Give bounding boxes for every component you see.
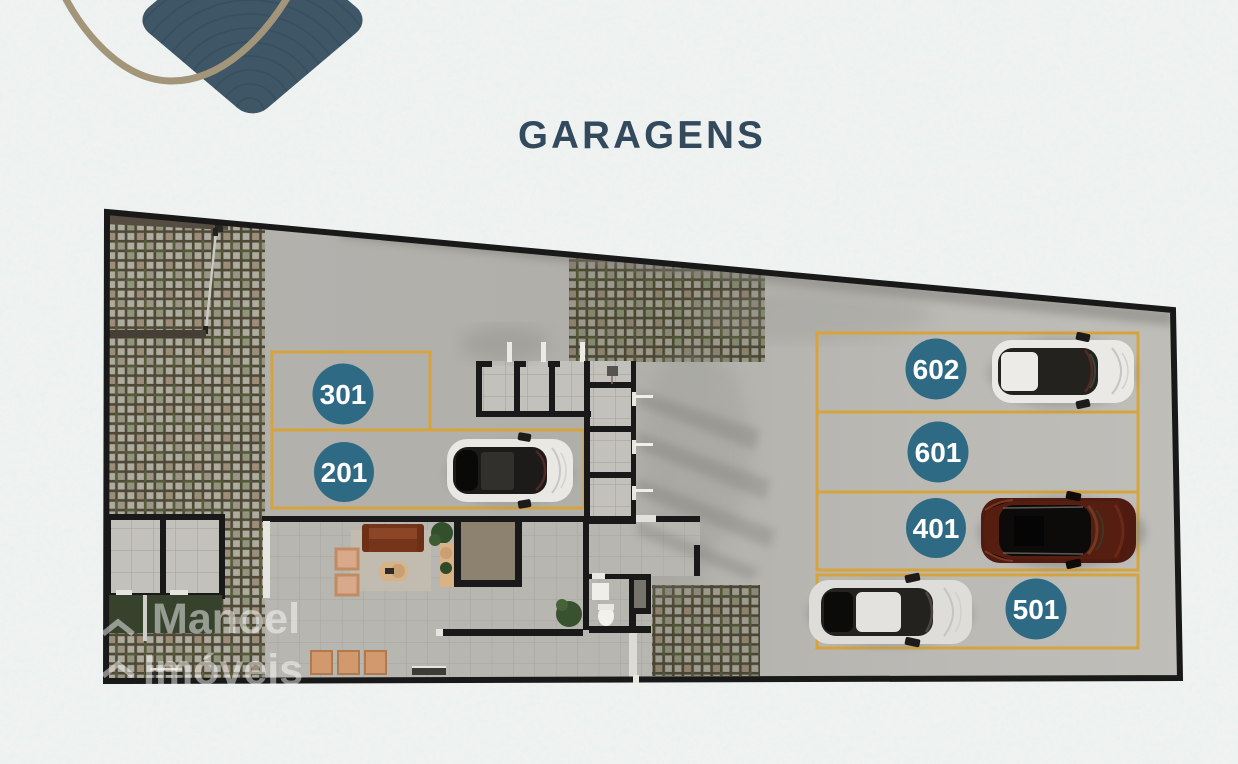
svg-text:201: 201	[321, 457, 368, 488]
svg-text:GARAGENS: GARAGENS	[518, 114, 766, 157]
svg-text:Manoel: Manoel	[152, 595, 300, 643]
svg-text:401: 401	[913, 513, 960, 544]
svg-text:601: 601	[915, 437, 962, 468]
svg-text:602: 602	[913, 354, 960, 385]
svg-text:Imóveis: Imóveis	[143, 646, 303, 694]
svg-text:501: 501	[1013, 594, 1060, 625]
svg-text:301: 301	[320, 379, 367, 410]
